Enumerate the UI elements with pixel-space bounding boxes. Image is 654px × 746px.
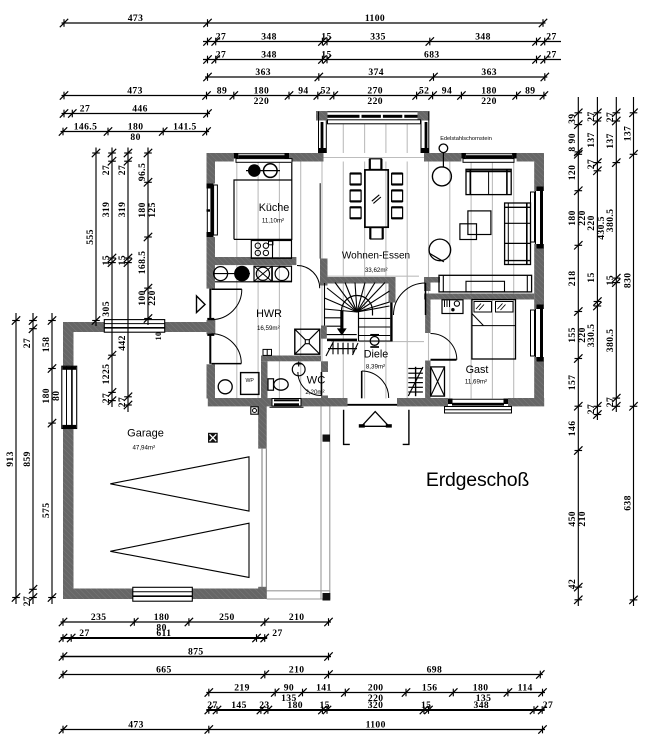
svg-text:348: 348 xyxy=(261,49,277,60)
svg-text:94: 94 xyxy=(298,85,308,96)
svg-text:611: 611 xyxy=(156,628,171,639)
svg-text:145: 145 xyxy=(231,700,247,711)
svg-text:180: 180 xyxy=(287,700,303,711)
svg-text:830: 830 xyxy=(622,273,633,289)
svg-text:250: 250 xyxy=(219,612,235,623)
svg-text:15: 15 xyxy=(586,272,597,282)
svg-text:33,62m²: 33,62m² xyxy=(365,267,388,274)
svg-text:10: 10 xyxy=(154,332,163,341)
svg-text:Diele: Diele xyxy=(364,349,389,361)
svg-text:210: 210 xyxy=(289,612,305,623)
svg-text:8: 8 xyxy=(567,146,578,151)
svg-text:27: 27 xyxy=(22,596,33,606)
svg-text:Küche: Küche xyxy=(259,202,290,214)
svg-text:52: 52 xyxy=(419,85,429,96)
svg-text:683: 683 xyxy=(424,49,440,60)
svg-text:319: 319 xyxy=(101,202,112,218)
svg-text:180: 180 xyxy=(481,85,497,96)
svg-text:1100: 1100 xyxy=(366,719,386,730)
svg-text:2,20m²: 2,20m² xyxy=(305,389,324,396)
svg-text:473: 473 xyxy=(127,85,143,96)
svg-text:Erdgeschoß: Erdgeschoß xyxy=(426,469,529,491)
svg-text:11,10m²: 11,10m² xyxy=(262,218,284,225)
svg-text:158: 158 xyxy=(41,337,52,353)
svg-text:575: 575 xyxy=(41,503,52,519)
svg-text:137: 137 xyxy=(622,126,633,142)
svg-text:27: 27 xyxy=(207,700,217,711)
svg-text:15: 15 xyxy=(117,255,128,265)
svg-text:137: 137 xyxy=(605,133,616,149)
svg-text:446: 446 xyxy=(132,103,148,114)
svg-text:52: 52 xyxy=(321,85,331,96)
svg-text:319: 319 xyxy=(117,202,128,218)
svg-text:320: 320 xyxy=(368,700,384,711)
svg-text:HWR: HWR xyxy=(256,308,282,320)
svg-text:27: 27 xyxy=(216,49,226,60)
svg-text:15: 15 xyxy=(101,255,112,265)
svg-text:473: 473 xyxy=(128,13,144,24)
svg-text:180: 180 xyxy=(128,121,144,132)
svg-text:Wohnen-Essen: Wohnen-Essen xyxy=(342,250,410,261)
svg-text:90: 90 xyxy=(567,133,578,143)
svg-text:39: 39 xyxy=(567,113,578,123)
svg-text:200: 200 xyxy=(368,682,384,693)
svg-text:220: 220 xyxy=(147,290,158,306)
svg-text:1225: 1225 xyxy=(101,364,112,385)
svg-text:168.5: 168.5 xyxy=(137,251,148,275)
svg-text:220: 220 xyxy=(254,96,270,107)
svg-text:16,59m²: 16,59m² xyxy=(257,325,280,332)
svg-text:89: 89 xyxy=(217,85,227,96)
svg-text:WC: WC xyxy=(307,375,326,387)
svg-text:15: 15 xyxy=(321,49,331,60)
svg-text:120: 120 xyxy=(567,165,578,181)
svg-text:348: 348 xyxy=(261,31,277,42)
svg-text:220: 220 xyxy=(367,96,383,107)
svg-text:Edelstahlschornstein: Edelstahlschornstein xyxy=(440,136,492,142)
svg-text:220: 220 xyxy=(481,96,497,107)
svg-text:27: 27 xyxy=(605,112,616,122)
svg-text:27: 27 xyxy=(605,397,616,407)
svg-text:330.5: 330.5 xyxy=(586,324,597,348)
svg-text:15: 15 xyxy=(605,275,616,285)
svg-text:141: 141 xyxy=(316,682,332,693)
svg-text:363: 363 xyxy=(481,67,497,78)
svg-text:235: 235 xyxy=(91,612,107,623)
svg-text:270: 270 xyxy=(367,85,383,96)
svg-text:473: 473 xyxy=(128,719,144,730)
svg-text:15: 15 xyxy=(319,700,329,711)
svg-text:157: 157 xyxy=(567,375,578,391)
svg-text:665: 665 xyxy=(156,664,172,675)
svg-text:114: 114 xyxy=(518,682,533,693)
svg-text:89: 89 xyxy=(525,85,535,96)
svg-text:27: 27 xyxy=(586,404,597,414)
svg-text:137: 137 xyxy=(586,132,597,148)
svg-text:180: 180 xyxy=(154,612,170,623)
svg-text:380.5: 380.5 xyxy=(605,329,616,353)
svg-text:27: 27 xyxy=(117,165,128,175)
svg-text:27: 27 xyxy=(80,103,90,114)
svg-text:27: 27 xyxy=(546,31,556,42)
svg-text:180: 180 xyxy=(473,682,489,693)
svg-text:442: 442 xyxy=(117,335,128,351)
svg-text:27: 27 xyxy=(79,628,89,639)
svg-text:146: 146 xyxy=(567,421,578,437)
svg-text:11,69m²: 11,69m² xyxy=(465,378,487,385)
svg-text:27: 27 xyxy=(586,111,597,121)
svg-text:27: 27 xyxy=(101,393,112,403)
svg-text:380.5: 380.5 xyxy=(605,209,616,233)
svg-text:1100: 1100 xyxy=(365,13,385,24)
svg-text:27: 27 xyxy=(543,700,553,711)
svg-text:141.5: 141.5 xyxy=(173,121,197,132)
svg-text:27: 27 xyxy=(272,628,282,639)
svg-text:348: 348 xyxy=(474,700,490,711)
svg-text:27: 27 xyxy=(586,159,597,169)
svg-text:96.5: 96.5 xyxy=(137,163,148,181)
svg-text:42: 42 xyxy=(567,579,578,589)
svg-text:8,39m²: 8,39m² xyxy=(366,363,385,370)
svg-text:146.5: 146.5 xyxy=(74,121,98,132)
svg-text:218: 218 xyxy=(567,271,578,287)
svg-text:27: 27 xyxy=(101,165,112,175)
svg-text:875: 875 xyxy=(188,646,204,657)
svg-text:15: 15 xyxy=(321,31,331,42)
svg-text:219: 219 xyxy=(234,682,250,693)
svg-text:Gast: Gast xyxy=(466,364,489,376)
svg-text:555: 555 xyxy=(85,229,96,245)
svg-text:27: 27 xyxy=(546,49,556,60)
svg-text:27: 27 xyxy=(117,397,128,407)
svg-text:80: 80 xyxy=(51,391,62,401)
svg-text:23: 23 xyxy=(259,700,269,711)
svg-text:335: 335 xyxy=(370,31,386,42)
svg-text:305: 305 xyxy=(101,301,112,317)
svg-text:156: 156 xyxy=(422,682,438,693)
svg-text:80: 80 xyxy=(130,132,140,143)
svg-text:15: 15 xyxy=(421,700,431,711)
svg-text:180: 180 xyxy=(254,85,270,96)
svg-text:374: 374 xyxy=(368,67,384,78)
svg-text:90: 90 xyxy=(284,682,294,693)
svg-text:859: 859 xyxy=(22,451,33,467)
svg-text:913: 913 xyxy=(5,451,16,467)
svg-text:27: 27 xyxy=(216,31,226,42)
svg-text:210: 210 xyxy=(577,511,588,527)
svg-text:27: 27 xyxy=(22,338,33,348)
svg-text:638: 638 xyxy=(622,495,633,511)
svg-text:363: 363 xyxy=(255,67,271,78)
svg-text:94: 94 xyxy=(442,85,452,96)
svg-text:210: 210 xyxy=(289,664,305,675)
svg-text:698: 698 xyxy=(427,664,443,675)
svg-text:348: 348 xyxy=(475,31,491,42)
svg-text:Garage: Garage xyxy=(127,427,164,439)
svg-text:125: 125 xyxy=(147,202,158,218)
svg-text:47,94m²: 47,94m² xyxy=(132,445,155,452)
svg-text:WP: WP xyxy=(246,378,255,384)
